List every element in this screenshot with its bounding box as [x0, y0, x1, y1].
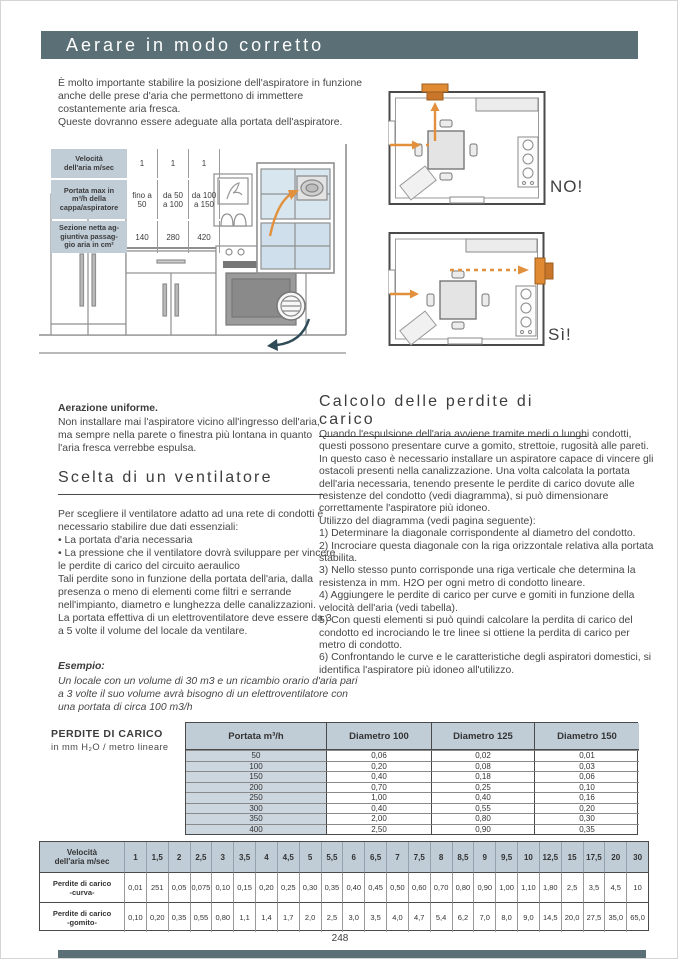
row-label: Perdite di carico -gomito- — [40, 902, 124, 932]
page-title: Aerare in modo corretto — [41, 35, 324, 56]
manual-page: Aerare in modo corretto È molto importan… — [0, 0, 678, 959]
column-header: 7 — [386, 842, 408, 872]
cell: 4,0 — [386, 902, 408, 932]
cell: 35,0 — [604, 902, 626, 932]
cell: 0,05 — [168, 872, 190, 902]
window-opening — [388, 270, 395, 294]
cell: 0,01 — [124, 872, 146, 902]
cell: 6,2 — [452, 902, 474, 932]
column-header: Portata m³/h — [186, 723, 326, 750]
cell: 200 — [186, 782, 326, 793]
cell: 1,1 — [233, 902, 255, 932]
esempio-body: Un locale con un volume di 30 m3 e un ri… — [58, 675, 358, 714]
header-bar: Aerare in modo corretto — [41, 31, 638, 59]
counter — [476, 98, 538, 111]
cell: 1,7 — [277, 902, 299, 932]
aerazione-body: Non installare mai l'aspiratore vicino a… — [58, 416, 336, 455]
cell: 0,10 — [124, 902, 146, 932]
cell: da 100 a 150 — [189, 180, 220, 219]
column-header: 5 — [299, 842, 321, 872]
floorplan-no — [388, 83, 548, 207]
cell: 1,00 — [326, 792, 431, 803]
cell: 14,5 — [539, 902, 561, 932]
cell: 251 — [146, 872, 168, 902]
cell: 10 — [626, 872, 648, 902]
velocita-table: Velocità dell'aria m/sec11,522,533,544,5… — [39, 841, 649, 931]
cell: 0,35 — [534, 824, 639, 835]
column-header: 4,5 — [277, 842, 299, 872]
cell: 0,70 — [326, 782, 431, 793]
cell: 0,25 — [277, 872, 299, 902]
cell: 0,80 — [452, 872, 474, 902]
cell: 9,0 — [517, 902, 539, 932]
perdite-table: Portata m³/hDiametro 100Diametro 125Diam… — [185, 722, 638, 835]
cell: 400 — [186, 824, 326, 835]
column-header: 9 — [473, 842, 495, 872]
cell: 4,7 — [408, 902, 430, 932]
table-row: Velocità dell'aria m/sec111 — [51, 149, 221, 178]
cell: 0,20 — [146, 902, 168, 932]
intro-text: È molto importante stabilire la posizion… — [58, 77, 363, 129]
cell: 1,4 — [255, 902, 277, 932]
cell: 0,25 — [431, 782, 534, 793]
cell: 0,01 — [534, 750, 639, 761]
cell: 50 — [186, 750, 326, 761]
cell: 5,4 — [430, 902, 452, 932]
column-header: 3,5 — [233, 842, 255, 872]
cell: 350 — [186, 813, 326, 824]
row-label: Perdite di carico -curva- — [40, 872, 124, 902]
cell: 3,0 — [342, 902, 364, 932]
cell: 0,10 — [534, 782, 639, 793]
cell: 100 — [186, 761, 326, 772]
cell: 0,90 — [431, 824, 534, 835]
cell: 7,0 — [473, 902, 495, 932]
column-header: 2 — [168, 842, 190, 872]
column-header: 8 — [430, 842, 452, 872]
cabinet — [126, 248, 216, 335]
cell: 0,30 — [299, 872, 321, 902]
vent-icon — [277, 292, 305, 320]
window-fan-icon — [297, 176, 327, 200]
cell: 280 — [158, 221, 189, 253]
cell: 1 — [158, 149, 189, 178]
cell: 3,5 — [583, 872, 605, 902]
aerazione-title: Aerazione uniforme. — [58, 403, 158, 414]
cell: 1,00 — [495, 872, 517, 902]
cell: 250 — [186, 792, 326, 803]
row-values: 111 — [127, 149, 221, 178]
cell: 3,5 — [364, 902, 386, 932]
cell: 0,55 — [431, 803, 534, 814]
cell: 0,50 — [386, 872, 408, 902]
cell: 0,90 — [473, 872, 495, 902]
column-header: 30 — [626, 842, 648, 872]
yes-label: Sì! — [548, 325, 572, 345]
cell: 0,70 — [430, 872, 452, 902]
row-label: Portata max in m³/h della cappa/aspirato… — [51, 180, 127, 219]
no-label: NO! — [550, 177, 583, 197]
cell: 0,15 — [233, 872, 255, 902]
cell: 140 — [127, 221, 158, 253]
cell: 0,55 — [190, 902, 212, 932]
cell: 8,0 — [495, 902, 517, 932]
row-label: Velocità dell'aria m/sec — [51, 149, 127, 178]
esempio-title: Esempio: — [58, 661, 105, 672]
cell: 2,50 — [326, 824, 431, 835]
column-header: 20 — [604, 842, 626, 872]
cell: 0,30 — [534, 813, 639, 824]
cell: 0,20 — [534, 803, 639, 814]
cell: 0,20 — [326, 761, 431, 772]
cell: 2,5 — [321, 902, 343, 932]
cell: 0,06 — [326, 750, 431, 761]
cell: fino a 50 — [127, 180, 158, 219]
cell: 2,5 — [561, 872, 583, 902]
footer-bar — [58, 950, 646, 959]
column-header: Diametro 125 — [431, 723, 534, 750]
cell: 150 — [186, 771, 326, 782]
table-row: Sezione netta ag- giuntiva passag- gio a… — [51, 221, 221, 253]
column-header: 12,5 — [539, 842, 561, 872]
calcolo-body: Quando l'espulsione dell'aria avviene tr… — [319, 429, 655, 677]
section-title-scelta: Scelta di un ventilatore — [58, 469, 323, 495]
cell: 0,03 — [534, 761, 639, 772]
column-header: 6,5 — [364, 842, 386, 872]
cell: 0,80 — [431, 813, 534, 824]
column-header: Diametro 100 — [326, 723, 431, 750]
cell: 0,075 — [190, 872, 212, 902]
cell: 0,02 — [431, 750, 534, 761]
window — [257, 163, 334, 273]
cell: 1 — [127, 149, 158, 178]
column-header: 15 — [561, 842, 583, 872]
cell: 0,40 — [431, 792, 534, 803]
cell: 0,35 — [321, 872, 343, 902]
row-values: 140280420 — [127, 221, 221, 253]
row-values: fino a 50da 50 a 100da 100 a 150 — [127, 180, 221, 219]
spec-table: Velocità dell'aria m/sec111Portata max i… — [51, 149, 221, 255]
cell: 20,0 — [561, 902, 583, 932]
perdite-caption-title: PERDITE DI CARICO — [51, 728, 163, 740]
cell: 0,20 — [255, 872, 277, 902]
column-header: 2,5 — [190, 842, 212, 872]
column-header: 9,5 — [495, 842, 517, 872]
cell: 27,5 — [583, 902, 605, 932]
door-opening — [448, 338, 482, 344]
scelta-body: Per scegliere il ventilatore adatto ad u… — [58, 508, 336, 638]
cell: 0,18 — [431, 771, 534, 782]
kitchen-figure: Velocità dell'aria m/sec111Portata max i… — [39, 139, 354, 369]
cell: 0,10 — [211, 872, 233, 902]
cell: 0,80 — [211, 902, 233, 932]
cell: 0,40 — [342, 872, 364, 902]
table-row: Portata max in m³/h della cappa/aspirato… — [51, 180, 221, 219]
column-header: 3 — [211, 842, 233, 872]
stove-icon — [516, 286, 536, 336]
stove-icon — [518, 137, 538, 187]
cell: 0,40 — [326, 771, 431, 782]
counter — [466, 239, 537, 252]
column-header: 17,5 — [583, 842, 605, 872]
column-header: 5,5 — [321, 842, 343, 872]
page-number: 248 — [1, 933, 678, 944]
row-label: Sezione netta ag- giuntiva passag- gio a… — [51, 221, 127, 253]
cell: 0,35 — [168, 902, 190, 932]
cell: 0,60 — [408, 872, 430, 902]
column-header: 7,5 — [408, 842, 430, 872]
cell: 1,80 — [539, 872, 561, 902]
fan-icon — [535, 258, 553, 284]
column-header: 1,5 — [146, 842, 168, 872]
cell: 0,45 — [364, 872, 386, 902]
column-header: 4 — [255, 842, 277, 872]
cell: 4,5 — [604, 872, 626, 902]
cell: 420 — [189, 221, 220, 253]
cell: 2,0 — [299, 902, 321, 932]
column-header: 1 — [124, 842, 146, 872]
cell: 65,0 — [626, 902, 648, 932]
column-header: 6 — [342, 842, 364, 872]
cell: 0,40 — [326, 803, 431, 814]
cell: da 50 a 100 — [158, 180, 189, 219]
perdite-caption-sub: in mm H₂O / metro lineare — [51, 742, 168, 752]
window-opening — [388, 121, 395, 145]
cell: 1 — [189, 149, 220, 178]
cell: 2,00 — [326, 813, 431, 824]
column-header: Velocità dell'aria m/sec — [40, 842, 124, 872]
door-opening — [450, 197, 484, 203]
column-header: 10 — [517, 842, 539, 872]
column-header: Diametro 150 — [534, 723, 639, 750]
floorplan-yes — [388, 228, 554, 352]
column-header: 8,5 — [452, 842, 474, 872]
cell: 0,06 — [534, 771, 639, 782]
cell: 1,10 — [517, 872, 539, 902]
cell: 300 — [186, 803, 326, 814]
cell: 0,08 — [431, 761, 534, 772]
cell: 0,16 — [534, 792, 639, 803]
